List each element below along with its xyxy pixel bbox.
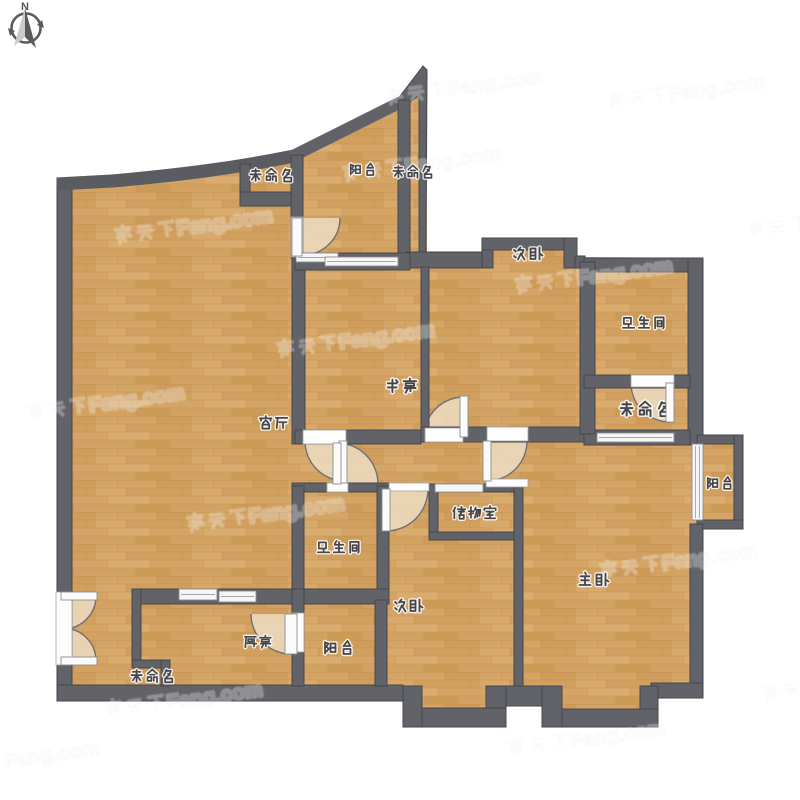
svg-text:N: N (21, 1, 29, 13)
